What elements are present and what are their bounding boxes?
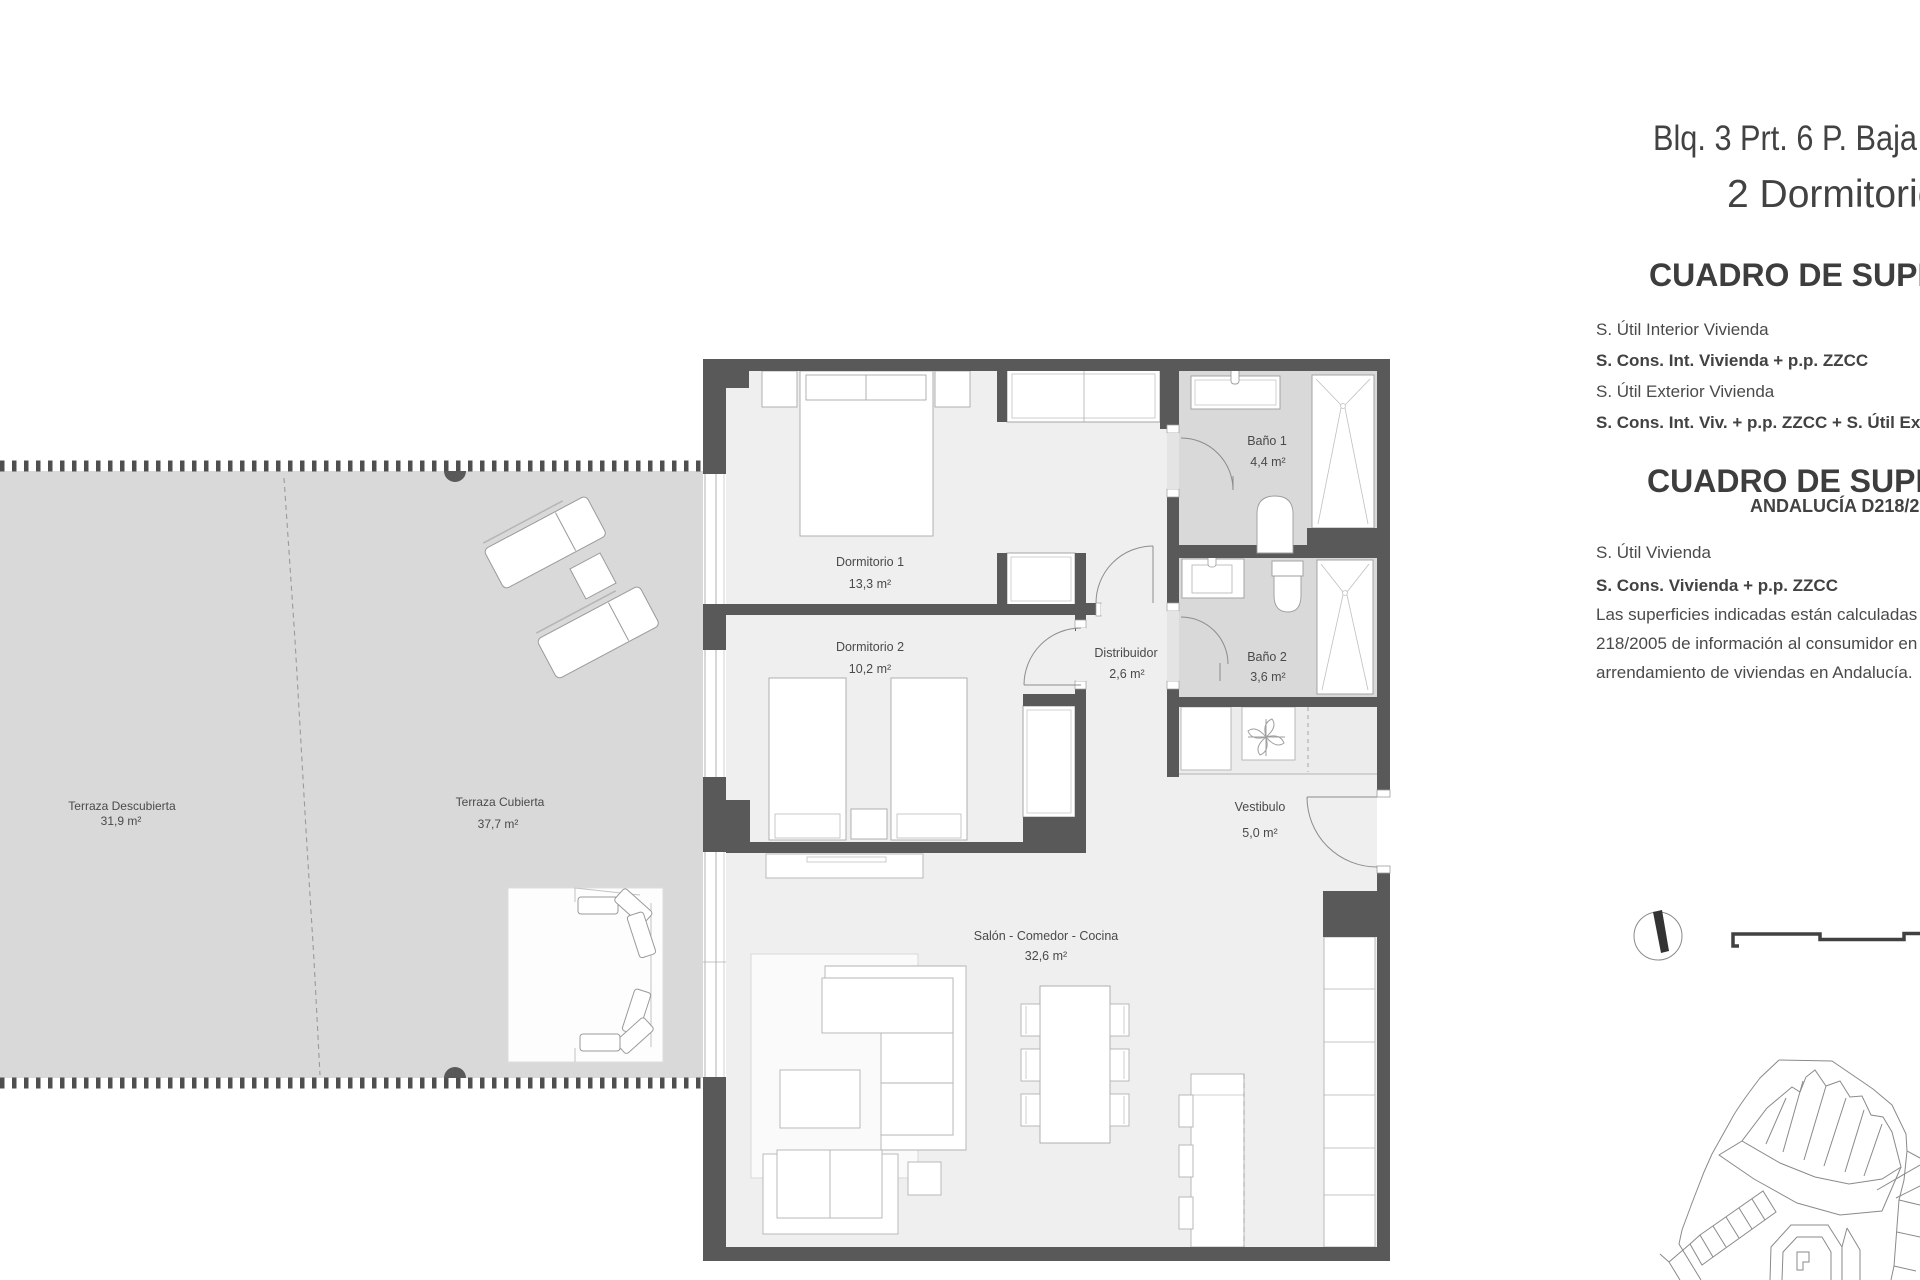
svg-text:37,7 m²: 37,7 m² xyxy=(478,817,519,831)
svg-text:S. Cons. Int. Vivienda + p.p.: S. Cons. Int. Vivienda + p.p. ZZCC xyxy=(1596,351,1868,370)
svg-text:S. Cons. Int. Viv. + p.p. ZZCC: S. Cons. Int. Viv. + p.p. ZZCC + S. Útil… xyxy=(1596,413,1920,432)
svg-text:Distribuidor: Distribuidor xyxy=(1094,646,1157,660)
svg-text:S. Útil Vivienda: S. Útil Vivienda xyxy=(1596,543,1712,562)
svg-text:Las superficies indicadas está: Las superficies indicadas están calculad… xyxy=(1596,605,1920,624)
svg-text:CUADRO DE SUPERFICIES: CUADRO DE SUPERFICIES xyxy=(1647,463,1920,499)
svg-text:Baño 1: Baño 1 xyxy=(1247,434,1287,448)
svg-text:2 Dormitorios: 2 Dormitorios xyxy=(1727,173,1920,216)
svg-text:S. Útil Interior Vivienda: S. Útil Interior Vivienda xyxy=(1596,320,1769,339)
svg-text:Dormitorio 2: Dormitorio 2 xyxy=(836,640,904,654)
svg-text:CUADRO DE SUPERFICIES: CUADRO DE SUPERFICIES xyxy=(1649,257,1920,293)
svg-text:Salón - Comedor - Cocina: Salón - Comedor - Cocina xyxy=(974,929,1119,943)
svg-text:S. Cons. Vivienda + p.p. ZZCC: S. Cons. Vivienda + p.p. ZZCC xyxy=(1596,576,1838,595)
svg-text:Terraza Descubierta: Terraza Descubierta xyxy=(68,799,176,813)
svg-text:218/2005 de información al con: 218/2005 de información al consumidor en… xyxy=(1596,634,1920,653)
svg-text:arrendamiento de viviendas en: arrendamiento de viviendas en Andalucía. xyxy=(1596,663,1913,682)
svg-text:3,6 m²: 3,6 m² xyxy=(1250,670,1285,684)
svg-text:Vestibulo: Vestibulo xyxy=(1235,800,1286,814)
svg-text:4,4 m²: 4,4 m² xyxy=(1250,455,1285,469)
svg-text:Dormitorio 1: Dormitorio 1 xyxy=(836,555,904,569)
svg-text:5,0 m²: 5,0 m² xyxy=(1242,826,1277,840)
svg-text:10,2 m²: 10,2 m² xyxy=(849,662,891,676)
svg-text:32,6 m²: 32,6 m² xyxy=(1025,949,1067,963)
svg-text:Terraza Cubierta: Terraza Cubierta xyxy=(456,795,545,809)
svg-text:Baño 2: Baño 2 xyxy=(1247,650,1287,664)
svg-text:13,3 m²: 13,3 m² xyxy=(849,577,891,591)
svg-text:31,9 m²: 31,9 m² xyxy=(101,814,142,828)
svg-text:2,6 m²: 2,6 m² xyxy=(1109,667,1144,681)
svg-text:Blq. 3 Prt. 6 P. Baja: Blq. 3 Prt. 6 P. Baja xyxy=(1653,118,1917,158)
svg-text:ANDALUCÍA D218/2005: ANDALUCÍA D218/2005 xyxy=(1750,495,1920,516)
svg-text:S. Útil Exterior Vivienda: S. Útil Exterior Vivienda xyxy=(1596,382,1775,401)
